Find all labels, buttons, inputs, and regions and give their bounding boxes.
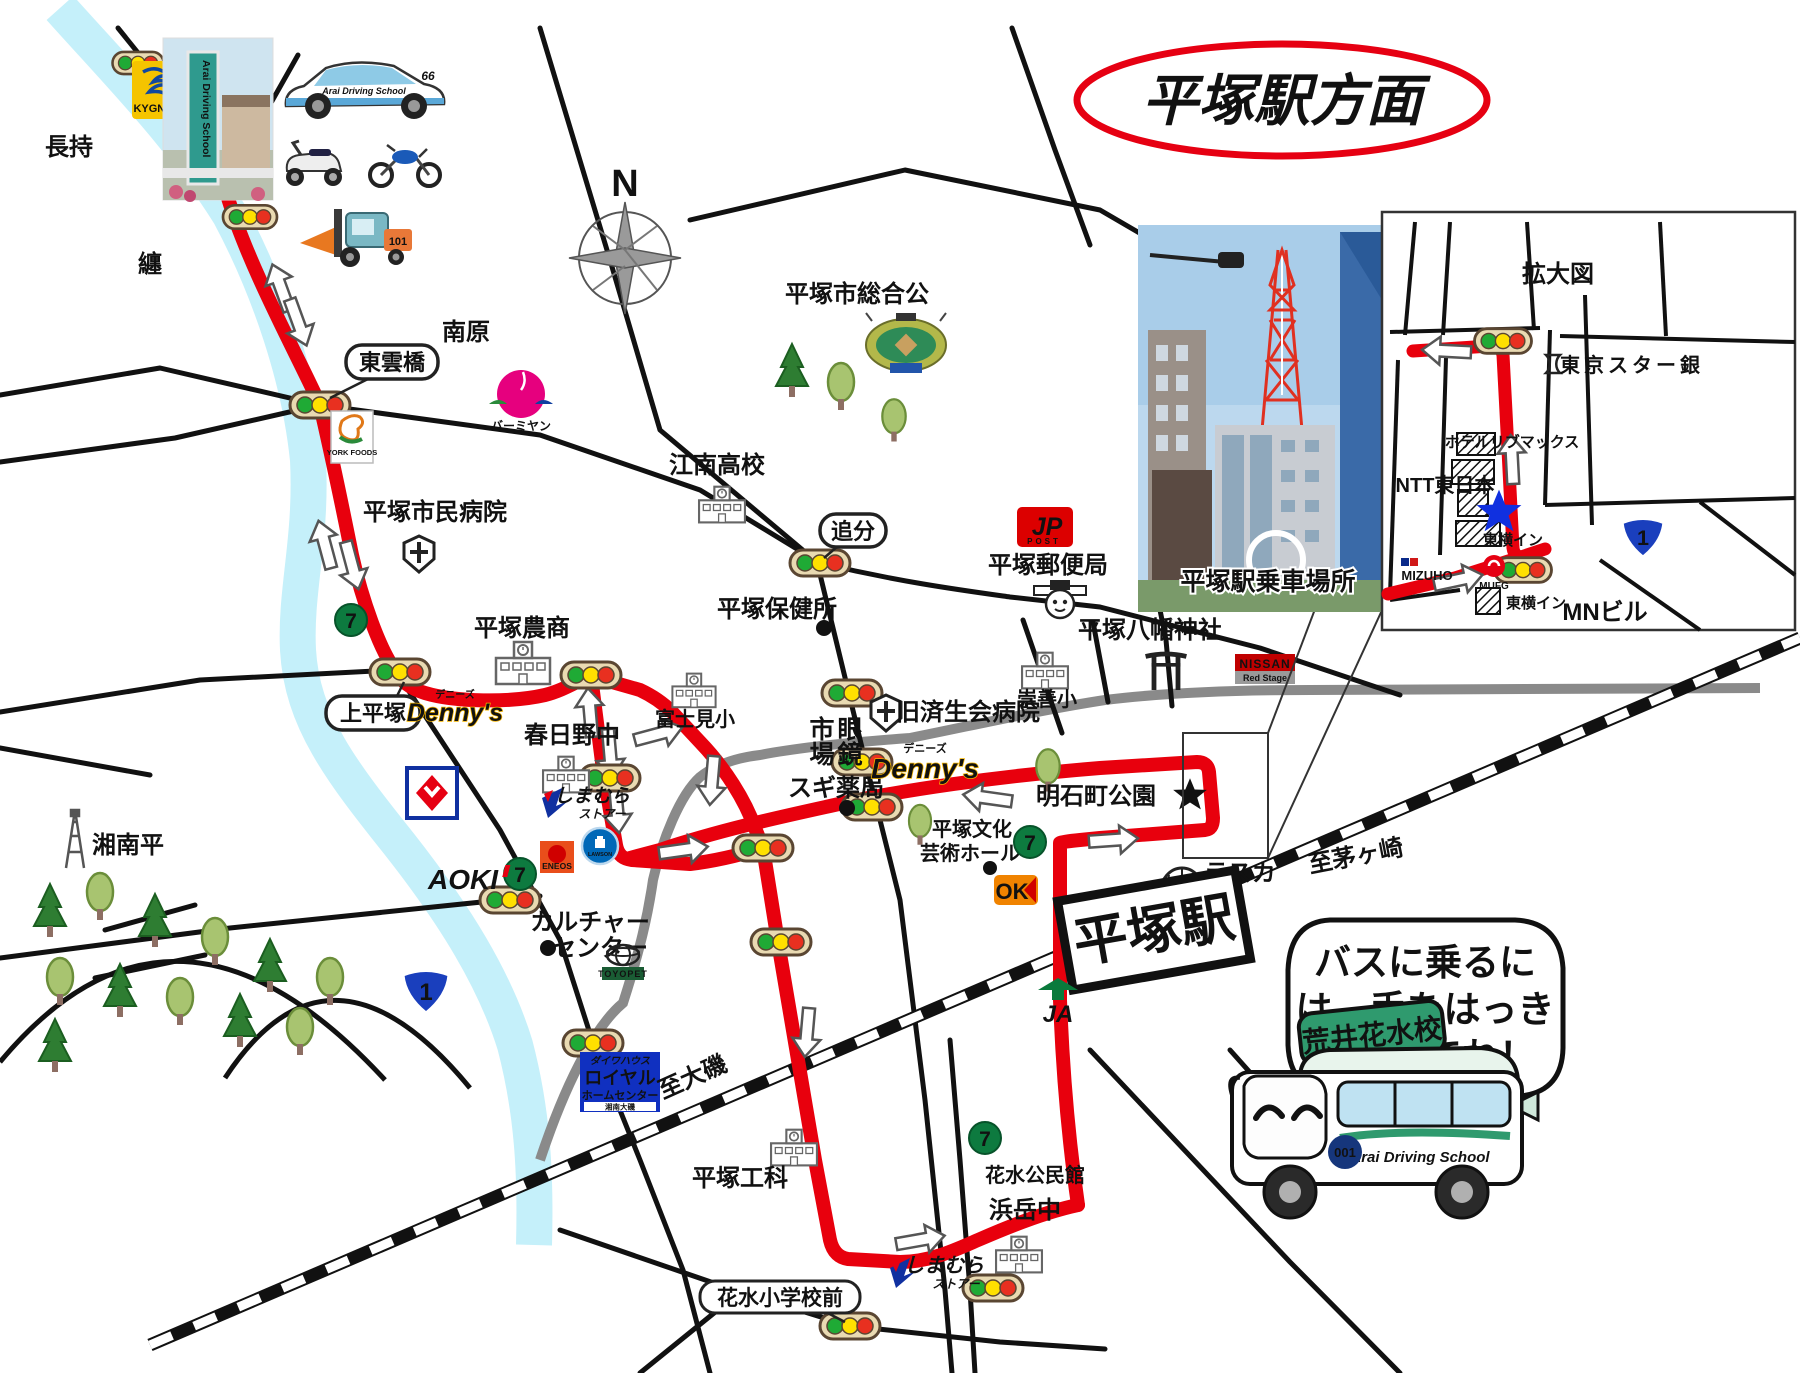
tree-icon [39, 1019, 71, 1072]
label-kominkan: 花水公民館 [985, 1163, 1085, 1187]
hospital-icon [404, 536, 434, 572]
training-car-illustration: Arai Driving School 66 [286, 62, 444, 119]
megane-text: 眼鏡 [834, 716, 863, 767]
label-minamihara: 南原 [442, 319, 490, 346]
road [0, 368, 320, 405]
school-icon [672, 674, 715, 708]
bubble-line-1: バスに乗るに [1314, 942, 1536, 983]
label-kamihiratsuka: 上平塚 [340, 701, 406, 726]
hokenjo-dot [816, 620, 832, 636]
eneos-text: ENEOS [542, 861, 572, 871]
school-icon [1022, 653, 1068, 689]
royal-text: ロイヤル [584, 1068, 655, 1088]
label-kakudaizu: 拡大図 [1522, 261, 1594, 288]
megane-ichiba-logo: 眼鏡 市場 [806, 715, 863, 767]
balloon-shinonome: 東雲橋 [330, 345, 438, 398]
lawson-text: LAWSON [588, 852, 612, 858]
label-yubinkyoku: 平塚郵便局 [988, 552, 1108, 579]
shonandaira-tower-icon [66, 810, 84, 868]
york-text: YORK FOODS [327, 448, 377, 457]
dennys-text: Denny's [871, 753, 979, 784]
pickup-star-icon [1173, 778, 1207, 809]
tree-icon [254, 939, 286, 992]
tree-icon [87, 873, 113, 920]
label-saiseikai: 旧済生会病院 [896, 698, 1040, 726]
compass-north-label: N [611, 163, 638, 205]
traffic-light-icon [370, 659, 430, 685]
seven-eleven-icon [969, 1122, 1001, 1154]
lawson-logo: LAWSON [582, 828, 618, 864]
car-number: 66 [421, 69, 435, 83]
tree-icon [202, 918, 228, 965]
shimamura-logo-1: しまむら ストアー [542, 786, 630, 821]
mizuho-text: MIZUHO [1401, 568, 1452, 583]
royal-hc-text: ホームセンター [582, 1089, 659, 1102]
tree-icon [287, 1008, 313, 1055]
motorcycle-illustration [370, 145, 440, 186]
school-sign-text: Arai Driving School [200, 60, 212, 158]
hiratsuka-station-box: 平塚駅 [1058, 870, 1251, 990]
tree-icon [167, 978, 193, 1025]
shimamura-text: しまむら [904, 1255, 984, 1277]
aoki-logo: AOKI [427, 864, 510, 895]
label-tokyostar: 東京スター銀 [1560, 353, 1704, 377]
royal-branch-text: 湘南大磯 [605, 1102, 635, 1112]
label-hamadake: 浜岳中 [989, 1197, 1061, 1224]
title-text: 平塚駅方面 [1142, 69, 1431, 132]
label-ntt: NTT東日本 [1396, 474, 1495, 497]
tree-icon [909, 805, 931, 845]
york-foods-logo: YORK FOODS [327, 411, 377, 463]
dennys-text: Denny's [407, 699, 503, 727]
label-shinonome: 東雲橋 [359, 350, 426, 375]
stadium-icon [866, 313, 946, 373]
ja-text: JA [1043, 1001, 1074, 1028]
label-oiwake: 追分 [831, 519, 875, 544]
label-akashicho: 明石町公園 [1036, 783, 1156, 810]
map-canvas: 7 [0, 0, 1800, 1373]
bunka-dot [983, 861, 997, 875]
road [1012, 28, 1090, 245]
label-sogo-koen: 平塚市総合公 [785, 280, 929, 308]
nissan-sign: NISSAN Red Stage [1235, 654, 1295, 684]
toyopet-text: TOYOPET [598, 969, 648, 979]
label-konan: 江南高校 [669, 451, 766, 479]
royal-daiwa-text: ダイワハウス [590, 1055, 650, 1067]
sugi-dot [839, 800, 855, 816]
tree-icon [828, 363, 854, 410]
ok-store-logo: OK [994, 875, 1038, 905]
school-icon [496, 642, 550, 684]
bamiyan-logo: バーミヤン [489, 370, 553, 433]
ok-text: OK [996, 879, 1029, 904]
seven-eleven-icon [504, 858, 536, 890]
map-title: 平塚駅方面 [1077, 44, 1487, 156]
inset-map: 拡大図 東京スター銀 ホテルリブマックス NTT東日本 東横イン 東横イン 1 … [1382, 212, 1795, 630]
shimamura-store-text: ストアー [932, 1277, 980, 1291]
label-sugi: スギ薬局 [788, 775, 884, 802]
traffic-light-icon [1475, 329, 1532, 354]
ichiba-text: 市場 [806, 715, 835, 767]
shimamura-text: しまむら [554, 786, 630, 807]
label-koka: 平塚工科 [692, 1165, 788, 1192]
label-matoi: 纏 [138, 250, 162, 278]
traffic-light-icon [820, 1313, 880, 1339]
seven-eleven-icon [335, 604, 367, 636]
traffic-light-icon [561, 662, 621, 688]
label-hokenjo: 平塚保健所 [717, 596, 837, 623]
label-livemax: ホテルリブマックス [1445, 433, 1580, 451]
road [0, 748, 150, 775]
forklift-illustration: 101 [300, 209, 412, 267]
river [60, 8, 534, 1245]
label-toyoko-2: 東横イン [1506, 594, 1566, 612]
shimamura-store-text: ストアー [578, 807, 626, 821]
traffic-light-icon [751, 929, 811, 955]
traffic-light-icon [223, 205, 277, 228]
tree-icon [224, 994, 256, 1047]
mufg-text: MUFG [1479, 581, 1509, 592]
tree-icon [776, 344, 808, 397]
car-school-text: Arai Driving School [321, 86, 406, 96]
label-bunka-1: 平塚文化 [932, 817, 1012, 841]
bus-side-text: Arai Driving School [1349, 1149, 1490, 1166]
road [0, 405, 320, 462]
label-culture-1: カルチャー [530, 909, 650, 936]
traffic-light-icon [733, 835, 793, 861]
label-nosho: 平塚農商 [474, 614, 570, 642]
diamond-store-logo [407, 768, 457, 818]
road [950, 1040, 975, 1373]
label-hanamizu-mae: 花水小学校前 [717, 1286, 843, 1310]
shimamura-logo-2: しまむら ストアー [890, 1255, 984, 1291]
label-fujimi: 富士見小 [655, 707, 735, 731]
route1-number: 1 [419, 979, 432, 1006]
seven-eleven-icon [1014, 826, 1046, 858]
route1-shield-main: 1 [403, 971, 449, 1014]
label-shonandaira: 湘南平 [92, 832, 164, 859]
bus-number: 001 [1334, 1145, 1356, 1160]
label-bunka-2: 芸術ホール [920, 841, 1020, 865]
jp-post-logo: JP POST [1017, 507, 1073, 547]
boarding-point-photo: 平塚駅乗車場所 [1138, 225, 1382, 612]
aoki-text: AOKI [427, 864, 499, 895]
scooter-illustration [286, 141, 342, 186]
traffic-light-icon [790, 550, 850, 576]
hiratsuka-route-map: 7 [0, 0, 1800, 1373]
label-kasugano: 春日野中 [524, 722, 620, 749]
bamiyan-text: バーミヤン [491, 419, 551, 433]
label-nagamochi: 長持 [45, 134, 93, 161]
redstage-text: Red Stage [1243, 673, 1287, 683]
label-shimin-byoin: 平塚市民病院 [363, 498, 507, 526]
tree-icon [34, 884, 66, 937]
nissan-text: NISSAN [1239, 657, 1290, 671]
label-hachiman: 平塚八幡神社 [1078, 616, 1222, 644]
royal-home-center-sign: ダイワハウス ロイヤル ホームセンター 湘南大磯 [580, 1052, 660, 1112]
eneos-logo: ENEOS [540, 841, 574, 873]
driving-school-photo: Arai Driving School [163, 38, 273, 202]
boarding-caption: 平塚駅乗車場所 [1180, 568, 1355, 596]
label-mn-building: MNビル [1562, 599, 1647, 626]
label-toyoko-1: 東横イン [1483, 531, 1543, 549]
route1-number: 1 [1637, 525, 1649, 550]
post-text: POST [1027, 537, 1061, 546]
tree-icon [882, 399, 905, 441]
dennys-logo-2: デニーズ Denny's [871, 741, 979, 784]
tree-icon [317, 958, 343, 1005]
balloon-oiwake: 追分 [820, 514, 886, 558]
road [690, 170, 1160, 245]
forklift-number: 101 [389, 236, 407, 248]
school-icon [996, 1237, 1042, 1273]
